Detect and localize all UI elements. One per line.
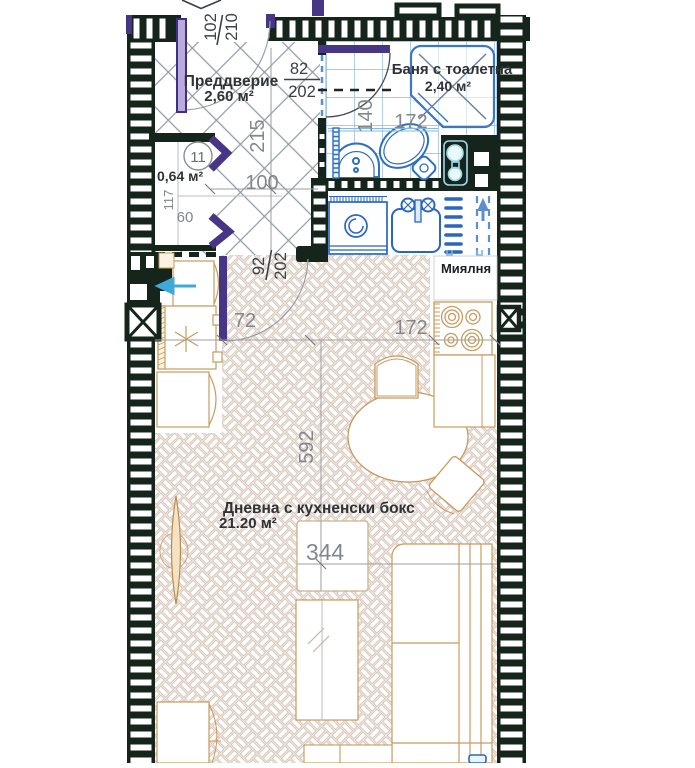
svg-text:202: 202 xyxy=(288,83,316,101)
svg-text:92: 92 xyxy=(250,257,268,275)
svg-text:117: 117 xyxy=(161,190,176,211)
svg-text:210: 210 xyxy=(223,13,241,41)
svg-text:100: 100 xyxy=(245,172,278,194)
svg-text:21.20 м²: 21.20 м² xyxy=(219,515,277,532)
svg-text:215: 215 xyxy=(247,119,269,152)
svg-text:82: 82 xyxy=(290,60,308,78)
svg-text:172: 172 xyxy=(394,111,427,133)
svg-text:Баня с тоалетна: Баня с тоалетна xyxy=(392,61,513,78)
svg-text:140: 140 xyxy=(355,99,377,132)
svg-text:102: 102 xyxy=(202,13,220,41)
svg-text:2,40 м²: 2,40 м² xyxy=(425,78,471,94)
svg-text:202: 202 xyxy=(272,252,290,280)
svg-text:72: 72 xyxy=(234,310,256,332)
svg-text:344: 344 xyxy=(306,539,345,565)
svg-text:11: 11 xyxy=(190,149,206,166)
svg-text:Миялня: Миялня xyxy=(441,261,491,276)
svg-text:592: 592 xyxy=(296,430,318,463)
svg-text:2,60 м²: 2,60 м² xyxy=(204,88,253,105)
svg-text:60: 60 xyxy=(177,209,194,226)
svg-text:172: 172 xyxy=(394,317,427,339)
